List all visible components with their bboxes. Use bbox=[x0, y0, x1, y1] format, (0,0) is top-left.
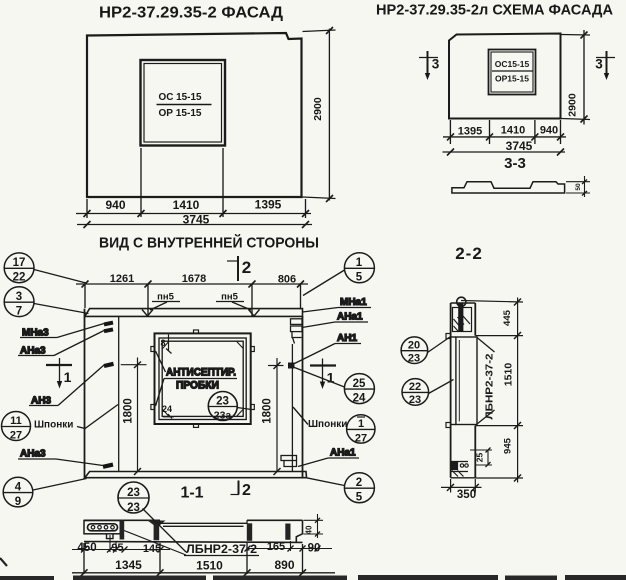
svg-text:АНа3: АНа3 bbox=[20, 449, 46, 460]
svg-text:1261: 1261 bbox=[110, 273, 134, 285]
svg-text:40: 40 bbox=[305, 525, 314, 534]
svg-text:2: 2 bbox=[242, 482, 251, 499]
svg-text:3-3: 3-3 bbox=[504, 155, 526, 172]
svg-text:890: 890 bbox=[274, 558, 294, 572]
svg-text:1345: 1345 bbox=[115, 558, 142, 572]
svg-text:ОР15-15: ОР15-15 bbox=[495, 74, 529, 84]
svg-text:НР2-37.29.35-2л СХЕМА ФАСАДА: НР2-37.29.35-2л СХЕМА ФАСАДА bbox=[376, 2, 613, 19]
svg-text:ОС15-15: ОС15-15 bbox=[495, 59, 530, 69]
svg-text:1410: 1410 bbox=[173, 198, 200, 212]
svg-text:1510: 1510 bbox=[196, 559, 223, 573]
svg-text:Шпонки: Шпонки bbox=[34, 420, 73, 431]
svg-text:3: 3 bbox=[595, 57, 603, 72]
svg-text:ОС 15-15: ОС 15-15 bbox=[159, 91, 202, 103]
svg-text:20: 20 bbox=[408, 340, 420, 352]
svg-text:2: 2 bbox=[242, 258, 251, 277]
svg-text:27: 27 bbox=[10, 430, 22, 442]
svg-text:4: 4 bbox=[15, 482, 22, 494]
svg-text:3745: 3745 bbox=[183, 213, 210, 227]
svg-text:22: 22 bbox=[13, 272, 26, 284]
svg-text:1410: 1410 bbox=[501, 125, 525, 137]
svg-text:23: 23 bbox=[216, 396, 229, 408]
svg-text:445: 445 bbox=[502, 309, 513, 326]
svg-text:23: 23 bbox=[127, 502, 140, 514]
svg-text:25: 25 bbox=[475, 453, 485, 463]
svg-text:8: 8 bbox=[160, 338, 165, 348]
svg-text:5: 5 bbox=[356, 272, 363, 284]
svg-text:2-2: 2-2 bbox=[455, 244, 483, 263]
svg-text:АНа1: АНа1 bbox=[337, 312, 363, 323]
svg-text:90: 90 bbox=[308, 543, 321, 555]
svg-text:1395: 1395 bbox=[255, 198, 282, 212]
svg-text:940: 940 bbox=[105, 198, 125, 212]
svg-text:АНТИСЕПТИР.: АНТИСЕПТИР. bbox=[166, 367, 236, 379]
svg-text:23а: 23а bbox=[214, 410, 232, 422]
svg-text:165: 165 bbox=[267, 541, 285, 553]
svg-text:ВИД С ВНУТРЕННЕЙ СТОРОНЫ: ВИД С ВНУТРЕННЕЙ СТОРОНЫ bbox=[99, 234, 319, 252]
svg-text:17: 17 bbox=[13, 257, 26, 269]
svg-text:940: 940 bbox=[540, 125, 558, 137]
svg-text:5: 5 bbox=[356, 492, 363, 504]
svg-text:2: 2 bbox=[356, 477, 362, 489]
svg-text:1: 1 bbox=[356, 257, 363, 269]
svg-text:ЛБНР2-37-2: ЛБНР2-37-2 bbox=[485, 353, 496, 419]
svg-text:23: 23 bbox=[408, 353, 420, 365]
svg-text:9: 9 bbox=[15, 496, 21, 508]
svg-text:50: 50 bbox=[575, 183, 582, 191]
svg-text:ПРОБКИ: ПРОБКИ bbox=[176, 380, 219, 392]
svg-text:1: 1 bbox=[64, 369, 72, 385]
svg-text:2900: 2900 bbox=[312, 97, 324, 121]
svg-text:1-1: 1-1 bbox=[180, 485, 203, 502]
svg-text:95: 95 bbox=[111, 542, 123, 554]
svg-text:945: 945 bbox=[503, 437, 514, 454]
svg-text:3: 3 bbox=[16, 291, 22, 303]
svg-text:1395: 1395 bbox=[458, 126, 482, 138]
svg-text:11: 11 bbox=[10, 415, 22, 427]
svg-text:АНа1: АНа1 bbox=[330, 448, 356, 459]
svg-text:25: 25 bbox=[353, 378, 366, 390]
svg-text:1800: 1800 bbox=[262, 398, 274, 424]
svg-text:НР2-37.29.35-2 ФАСАД: НР2-37.29.35-2 ФАСАД bbox=[99, 5, 284, 22]
svg-text:1678: 1678 bbox=[182, 273, 206, 285]
svg-text:27: 27 bbox=[355, 433, 367, 445]
svg-text:3745: 3745 bbox=[506, 139, 533, 153]
svg-text:1800: 1800 bbox=[123, 398, 135, 424]
svg-text:3: 3 bbox=[432, 57, 440, 72]
svg-text:23: 23 bbox=[127, 487, 140, 499]
svg-text:ОР 15-15: ОР 15-15 bbox=[159, 107, 202, 119]
svg-text:ЛБНР2-37-2: ЛБНР2-37-2 bbox=[186, 544, 257, 556]
svg-text:23: 23 bbox=[409, 394, 421, 406]
svg-text:806: 806 bbox=[278, 274, 296, 286]
svg-text:145: 145 bbox=[143, 543, 161, 555]
svg-text:Шпонки: Шпонки bbox=[308, 419, 347, 430]
svg-text:7: 7 bbox=[16, 306, 22, 318]
svg-text:1510: 1510 bbox=[503, 363, 515, 387]
svg-text:АН1: АН1 bbox=[337, 333, 357, 344]
svg-text:450: 450 bbox=[77, 542, 96, 554]
svg-text:МНа1: МНа1 bbox=[340, 297, 367, 308]
svg-text:350: 350 bbox=[457, 489, 476, 501]
svg-text:24: 24 bbox=[353, 393, 366, 405]
svg-text:22: 22 bbox=[409, 381, 421, 393]
svg-text:1: 1 bbox=[358, 418, 364, 430]
svg-text:2900: 2900 bbox=[567, 93, 579, 117]
svg-text:24: 24 bbox=[162, 404, 172, 414]
